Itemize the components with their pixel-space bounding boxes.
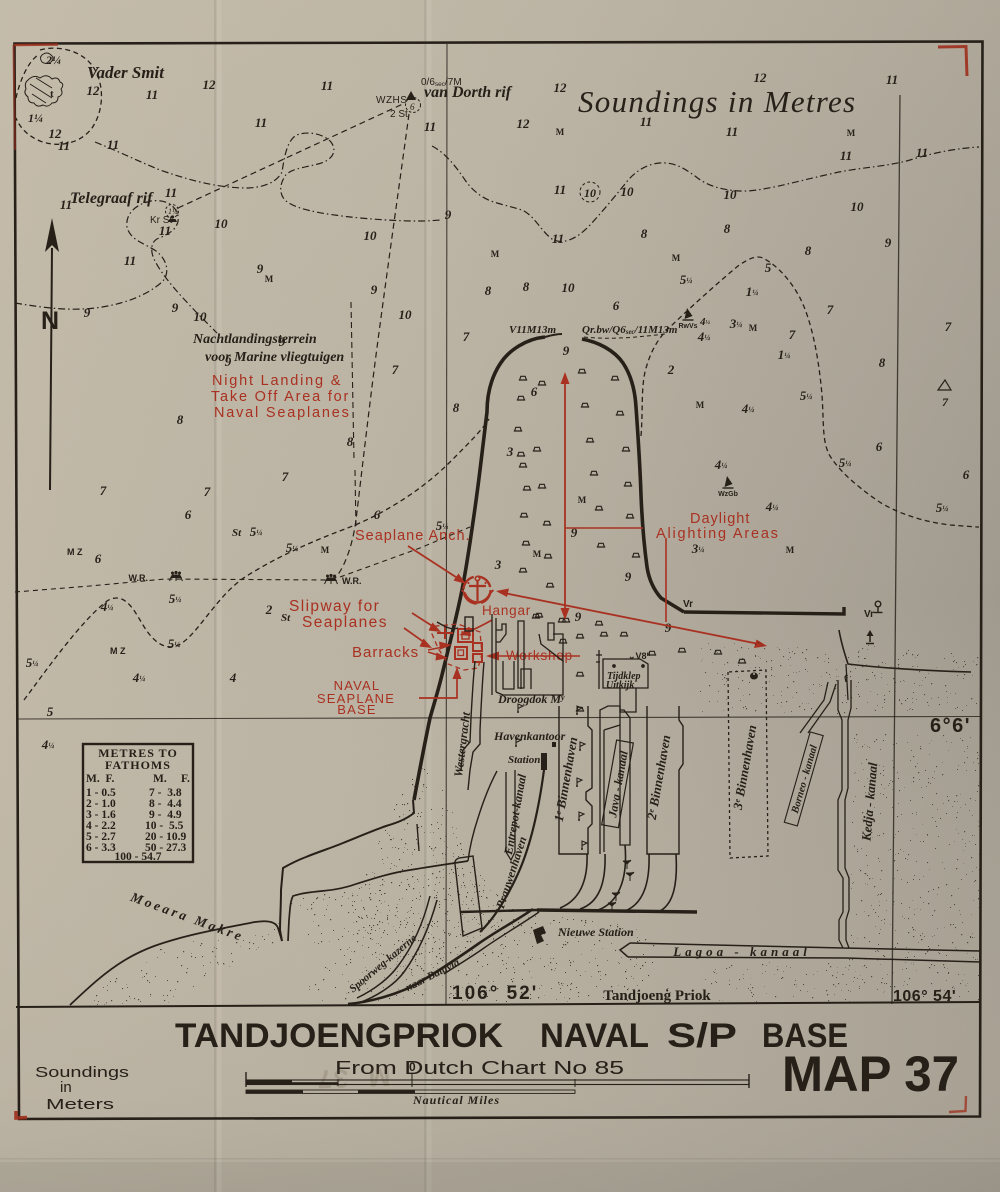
svg-text:7: 7: [392, 362, 399, 377]
svg-text:S/P: S/P: [667, 1017, 737, 1055]
svg-text:11: 11: [107, 137, 119, 152]
svg-text:Nieuwe Station: Nieuwe Station: [557, 925, 634, 939]
svg-text:W.R.: W.R.: [129, 573, 149, 583]
svg-text:9: 9: [575, 609, 582, 624]
svg-text:Daylight: Daylight: [690, 511, 750, 527]
svg-text:Soundings: Soundings: [35, 1064, 129, 1081]
svg-text:BASE: BASE: [337, 702, 376, 717]
svg-text:9: 9: [665, 620, 672, 635]
svg-text:4: 4: [229, 670, 237, 685]
svg-text:Vr: Vr: [683, 599, 693, 610]
svg-text:WZHS: WZHS: [376, 95, 407, 106]
svg-text:M: M: [749, 323, 758, 333]
svg-text:Night Landing &: Night Landing &: [212, 373, 342, 389]
svg-text:6°6': 6°6': [930, 715, 971, 737]
svg-text:M: M: [786, 545, 795, 555]
svg-text:8: 8: [347, 434, 354, 449]
svg-text:V11M13m: V11M13m: [509, 324, 557, 336]
svg-text:7: 7: [942, 395, 949, 409]
svg-text:11: 11: [146, 87, 158, 102]
svg-text:M: M: [696, 400, 705, 410]
svg-text:9: 9: [84, 305, 91, 320]
svg-text:11: 11: [424, 119, 436, 134]
svg-text:Lagoa - kanaal: Lagoa - kanaal: [672, 944, 811, 959]
svg-text:M: M: [265, 274, 274, 284]
svg-text:5: 5: [765, 260, 772, 275]
svg-text:12: 12: [203, 77, 217, 92]
svg-text:F.: F.: [181, 773, 190, 785]
svg-text:M: M: [533, 549, 542, 559]
svg-text:St: St: [232, 527, 242, 539]
svg-text:2 St: 2 St: [390, 109, 408, 120]
svg-text:10: 10: [215, 216, 229, 231]
svg-text:11: 11: [640, 114, 652, 129]
svg-text:10: 10: [724, 187, 738, 202]
svg-text:12: 12: [87, 83, 101, 98]
svg-text:6: 6: [410, 102, 415, 112]
svg-text:3: 3: [494, 557, 502, 572]
svg-text:8: 8: [485, 283, 492, 298]
svg-text:10: 10: [584, 186, 596, 200]
svg-text:11: 11: [840, 148, 852, 163]
svg-text:12: 12: [754, 70, 768, 85]
svg-text:M Z: M Z: [67, 547, 83, 557]
svg-text:8: 8: [879, 355, 886, 370]
svg-text:7: 7: [204, 484, 211, 499]
svg-text:Station: Station: [508, 754, 540, 766]
svg-text:voor Marine vliegtuigen: voor Marine vliegtuigen: [205, 350, 344, 365]
svg-text:Naval Seaplanes: Naval Seaplanes: [214, 405, 351, 421]
svg-text:Vr: Vr: [864, 609, 874, 620]
svg-text:11: 11: [165, 185, 177, 200]
svg-text:106° 52': 106° 52': [452, 983, 538, 1004]
svg-text:7: 7: [282, 469, 289, 484]
svg-text:6: 6: [613, 298, 620, 313]
svg-text:MAP 37: MAP 37: [782, 1046, 959, 1102]
svg-text:9: 9: [172, 300, 179, 315]
svg-text:10: 10: [621, 184, 635, 199]
svg-text:M.: M.: [153, 773, 167, 785]
svg-text:Meters: Meters: [46, 1096, 114, 1113]
svg-text:WzGb: WzGb: [718, 491, 738, 498]
svg-text:Slipway for: Slipway for: [289, 598, 380, 615]
svg-text:Havenkantoor: Havenkantoor: [493, 729, 566, 743]
svg-text:W.R.: W.R.: [342, 576, 362, 586]
svg-text:11: 11: [124, 253, 136, 268]
svg-text:12: 12: [49, 126, 63, 141]
svg-text:M: M: [321, 545, 330, 555]
svg-text:7: 7: [945, 319, 952, 334]
svg-text:6: 6: [95, 551, 102, 566]
svg-text:9: 9: [885, 235, 892, 250]
svg-text:M: M: [672, 253, 681, 263]
svg-text:in: in: [60, 1079, 72, 1096]
svg-text:11: 11: [916, 145, 928, 160]
svg-text:Tandjoenģ Priok: Tandjoenģ Priok: [603, 988, 711, 1004]
svg-text:11: 11: [159, 223, 171, 238]
svg-text:6: 6: [185, 507, 192, 522]
svg-text:10: 10: [364, 228, 378, 243]
svg-text:9: 9: [445, 207, 452, 222]
svg-text:10: 10: [851, 199, 865, 214]
svg-text:1¼: 1¼: [28, 111, 43, 125]
svg-text:10: 10: [194, 309, 208, 324]
svg-text:8: 8: [805, 243, 812, 258]
svg-text:2¼: 2¼: [45, 53, 61, 67]
svg-text:7: 7: [463, 329, 470, 344]
svg-text:5: 5: [47, 704, 54, 719]
svg-text:6: 6: [374, 507, 381, 522]
svg-text:Soundings in Metres: Soundings in Metres: [578, 84, 856, 119]
svg-text:2: 2: [667, 362, 675, 377]
svg-text:Barracks: Barracks: [352, 644, 419, 661]
svg-text:7: 7: [789, 327, 796, 342]
svg-text:Nautical Miles: Nautical Miles: [412, 1093, 500, 1107]
svg-text:FATHOMS: FATHOMS: [105, 758, 171, 772]
svg-text:van Dorth rif: van Dorth rif: [424, 84, 513, 101]
svg-text:2: 2: [265, 602, 273, 617]
svg-text:9: 9: [257, 261, 264, 276]
svg-text:Nachtlandingsterrein: Nachtlandingsterrein: [192, 332, 317, 347]
svg-text:Telegraaf rif: Telegraaf rif: [70, 190, 154, 207]
svg-text:6: 6: [963, 467, 970, 482]
svg-text:Droogdok My: Droogdok My: [497, 692, 565, 706]
svg-text:9: 9: [563, 343, 570, 358]
svg-text:6: 6: [876, 439, 883, 454]
svg-text:Seaplane Anch.: Seaplane Anch.: [355, 528, 471, 544]
svg-text:9: 9: [625, 569, 632, 584]
svg-text:M: M: [578, 495, 587, 505]
svg-text:11: 11: [255, 115, 267, 130]
svg-text:M: M: [847, 128, 856, 138]
svg-text:NAVAL: NAVAL: [540, 1017, 649, 1055]
svg-text:N: N: [41, 307, 59, 335]
svg-text:RwVs: RwVs: [678, 323, 697, 330]
svg-text:Uitkijk: Uitkijk: [606, 680, 634, 691]
svg-text:7: 7: [827, 302, 834, 317]
svg-text:11: 11: [321, 78, 333, 93]
svg-text:3: 3: [506, 444, 514, 459]
svg-text:Alighting Areas: Alighting Areas: [656, 526, 780, 542]
svg-text:8: 8: [523, 279, 530, 294]
svg-text:Hangar: Hangar: [482, 603, 531, 618]
svg-text:0: 0: [409, 1060, 416, 1074]
svg-text:12: 12: [554, 80, 568, 95]
svg-text:8: 8: [453, 400, 460, 415]
svg-text:100 - 54.7: 100 - 54.7: [115, 851, 162, 863]
svg-text:8: 8: [641, 226, 648, 241]
svg-text:M. F.: M. F.: [86, 773, 114, 785]
svg-text:M Z: M Z: [110, 646, 126, 656]
svg-text:12: 12: [517, 116, 531, 131]
svg-text:6: 6: [531, 384, 538, 399]
svg-text:8: 8: [724, 221, 731, 236]
svg-text:TANDJOENGPRIOK: TANDJOENGPRIOK: [175, 1017, 503, 1055]
svg-text:t: t: [50, 88, 54, 100]
svg-text:7: 7: [100, 483, 107, 498]
svg-text:10: 10: [399, 307, 413, 322]
svg-text:Seaplanes: Seaplanes: [302, 614, 388, 631]
svg-text:11: 11: [886, 72, 898, 87]
svg-text:8: 8: [177, 412, 184, 427]
svg-text:M: M: [491, 249, 500, 259]
svg-text:11: 11: [554, 182, 566, 197]
svg-text:M: M: [556, 127, 565, 137]
svg-text:10: 10: [562, 280, 576, 295]
svg-text:11: 11: [726, 124, 738, 139]
svg-text:9: 9: [371, 282, 378, 297]
svg-text:11: 11: [552, 231, 564, 246]
svg-text:6 - 3.3: 6 - 3.3: [86, 842, 116, 854]
svg-text:11: 11: [60, 197, 72, 212]
svg-text:Take Off Area for: Take Off Area for: [211, 389, 350, 405]
